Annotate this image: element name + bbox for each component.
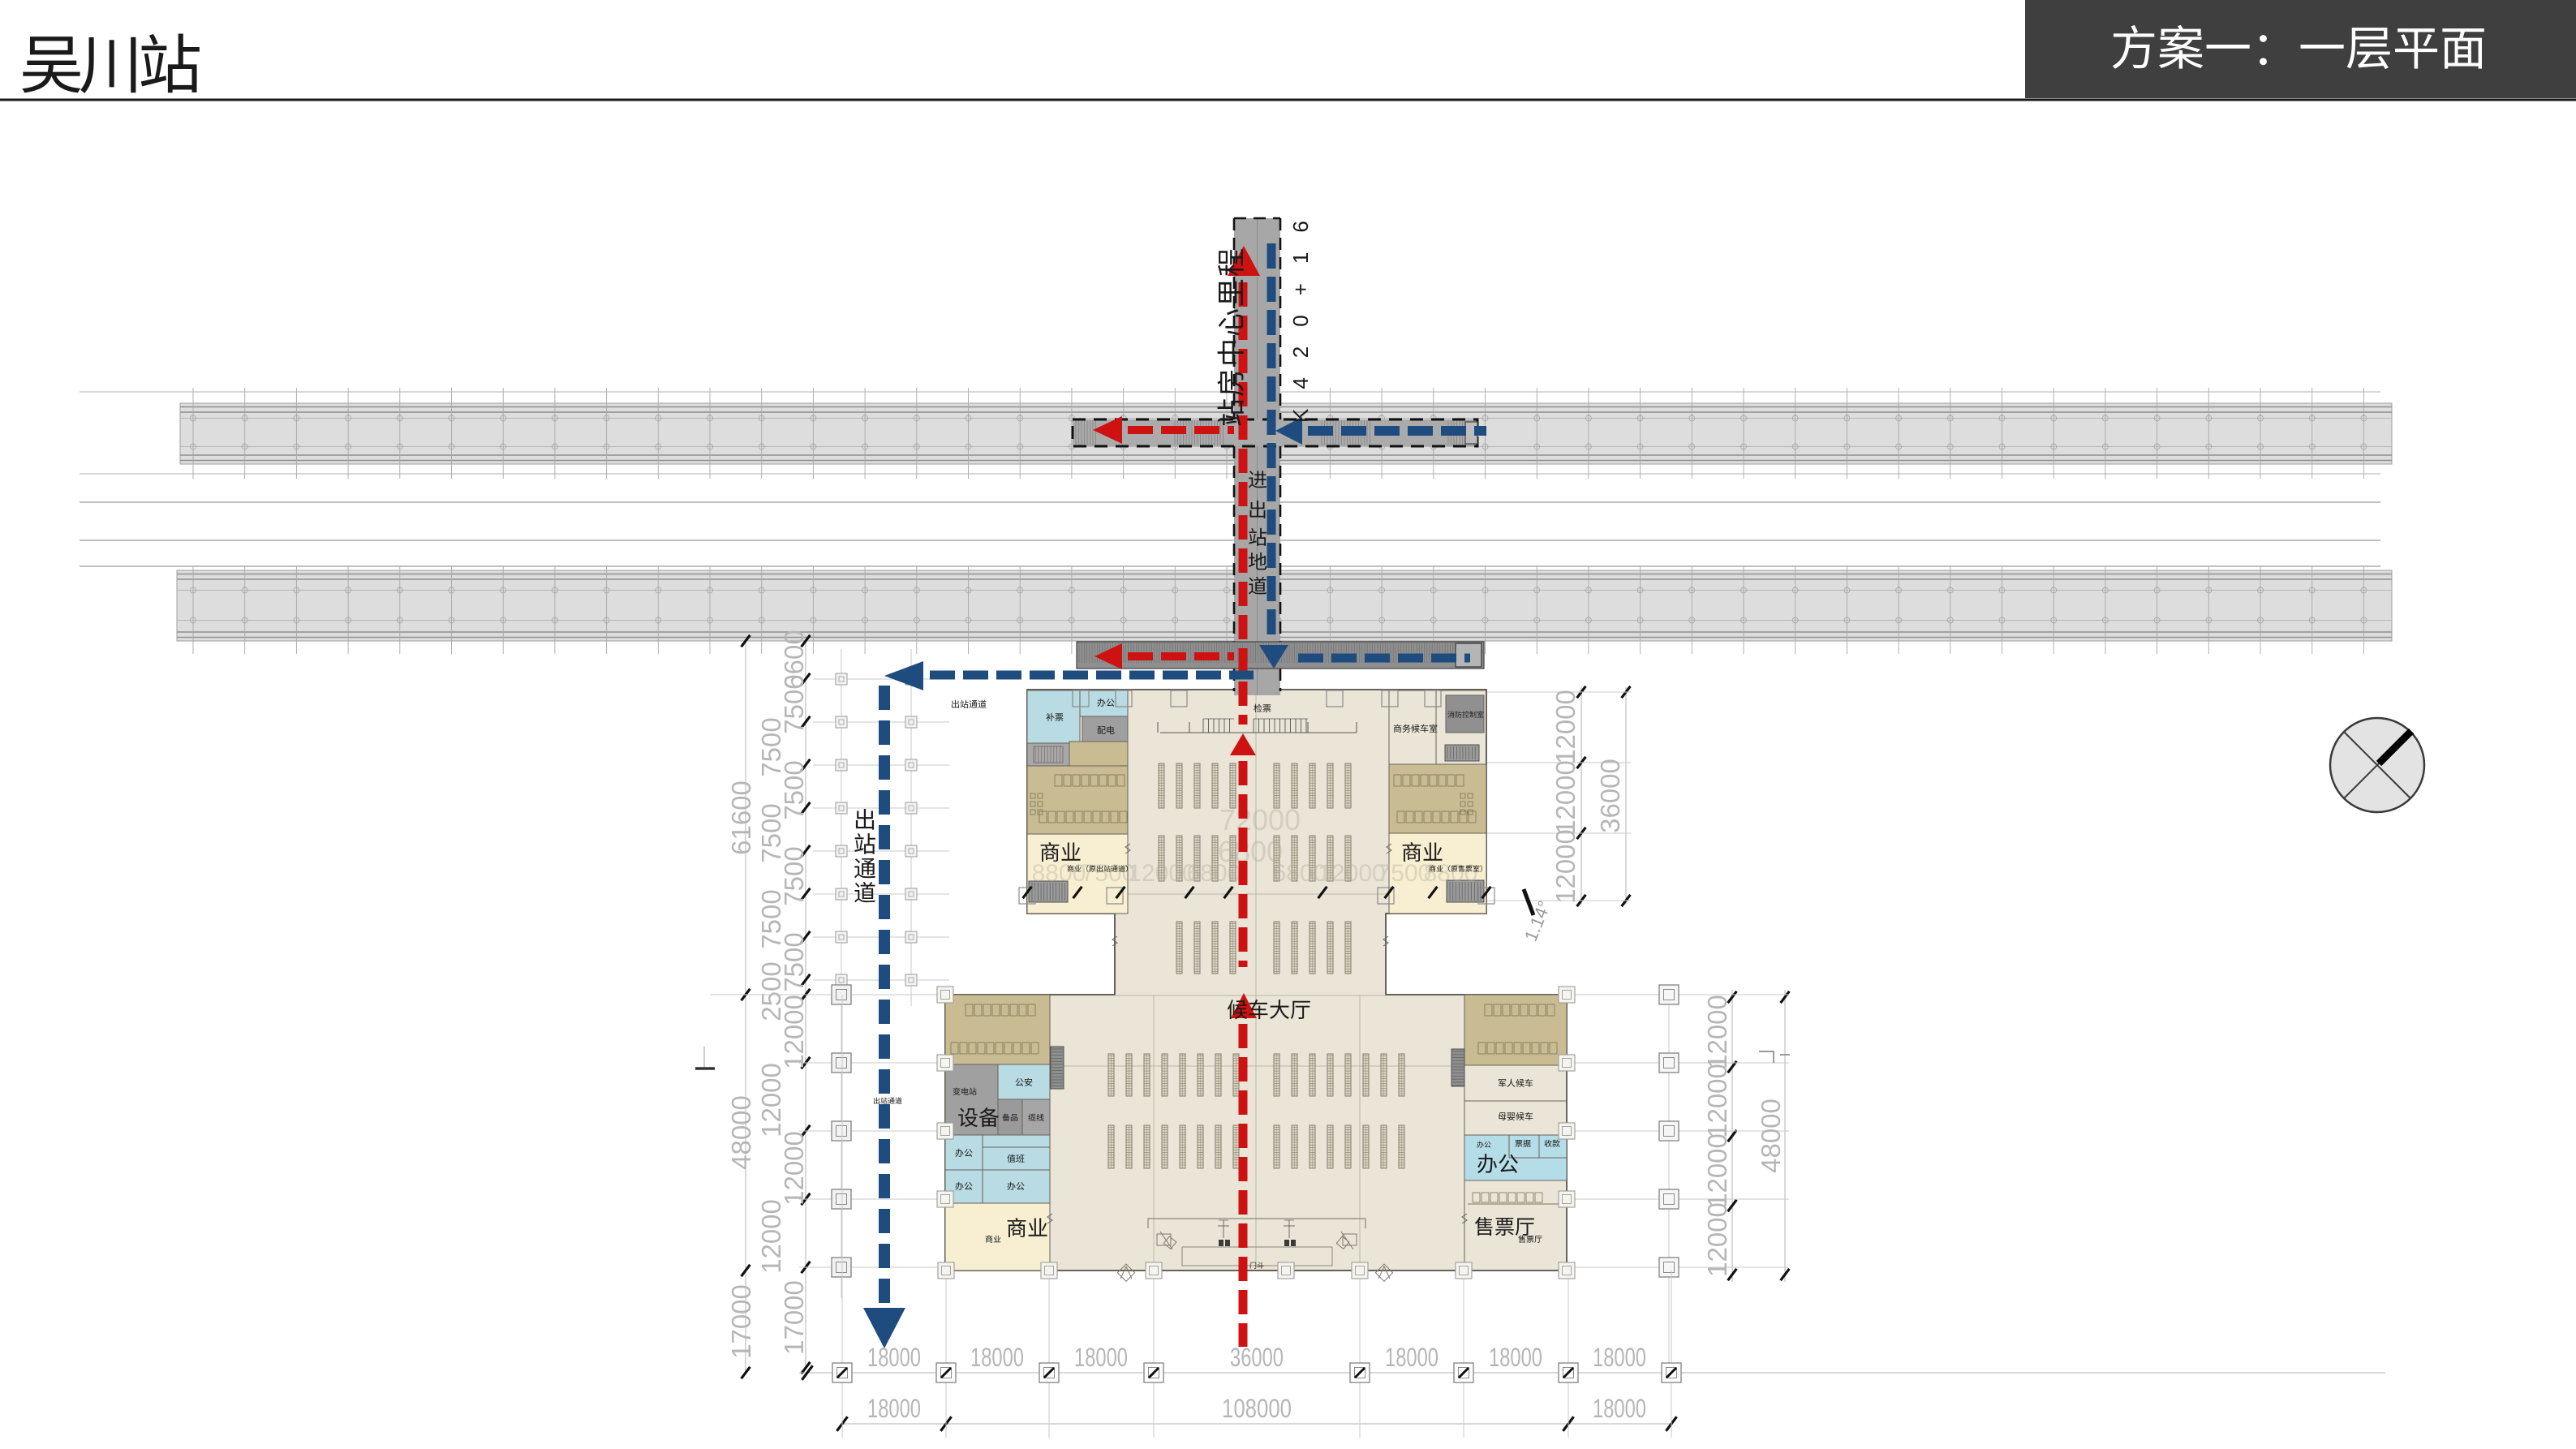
svg-text:12000: 12000 bbox=[1702, 1202, 1732, 1277]
svg-text:108000: 108000 bbox=[1222, 1394, 1292, 1423]
svg-text:72000: 72000 bbox=[1219, 803, 1301, 836]
svg-text:18000: 18000 bbox=[1074, 1343, 1128, 1372]
svg-text:6800: 6800 bbox=[1187, 860, 1241, 887]
svg-text:17000: 17000 bbox=[779, 1280, 809, 1355]
svg-text:12000: 12000 bbox=[756, 1063, 786, 1137]
svg-text:17000: 17000 bbox=[726, 1284, 756, 1359]
svg-text:18000: 18000 bbox=[1385, 1343, 1439, 1372]
svg-text:1.14°: 1.14° bbox=[1520, 898, 1555, 944]
svg-text:12000: 12000 bbox=[1128, 860, 1195, 887]
svg-text:48000: 48000 bbox=[726, 1095, 756, 1170]
svg-text:18000: 18000 bbox=[1593, 1394, 1646, 1423]
svg-text:18000: 18000 bbox=[867, 1394, 921, 1423]
svg-text:12000: 12000 bbox=[779, 1131, 809, 1206]
svg-text:18000: 18000 bbox=[1489, 1343, 1542, 1372]
svg-text:48000: 48000 bbox=[1756, 1099, 1786, 1173]
svg-text:K420+16: K420+16 bbox=[1288, 201, 1313, 423]
svg-text:12000: 12000 bbox=[1702, 1133, 1732, 1208]
svg-text:18000: 18000 bbox=[1593, 1343, 1646, 1372]
svg-text:12000: 12000 bbox=[1550, 829, 1580, 904]
svg-text:36000: 36000 bbox=[1230, 1343, 1284, 1372]
svg-text:61600: 61600 bbox=[726, 780, 756, 855]
svg-text:12000: 12000 bbox=[756, 1199, 786, 1274]
svg-text:12000: 12000 bbox=[1550, 760, 1580, 835]
svg-text:18000: 18000 bbox=[867, 1343, 921, 1372]
svg-text:12000: 12000 bbox=[1702, 995, 1732, 1069]
svg-text:8800: 8800 bbox=[1032, 860, 1086, 887]
svg-text:36000: 36000 bbox=[1595, 759, 1625, 833]
svg-text:12000: 12000 bbox=[1318, 860, 1385, 887]
svg-text:12000: 12000 bbox=[1702, 1064, 1732, 1138]
svg-text:12000: 12000 bbox=[779, 995, 809, 1069]
svg-text:8800: 8800 bbox=[1424, 860, 1478, 887]
svg-text:18000: 18000 bbox=[970, 1343, 1024, 1372]
svg-text:12000: 12000 bbox=[1550, 690, 1580, 764]
